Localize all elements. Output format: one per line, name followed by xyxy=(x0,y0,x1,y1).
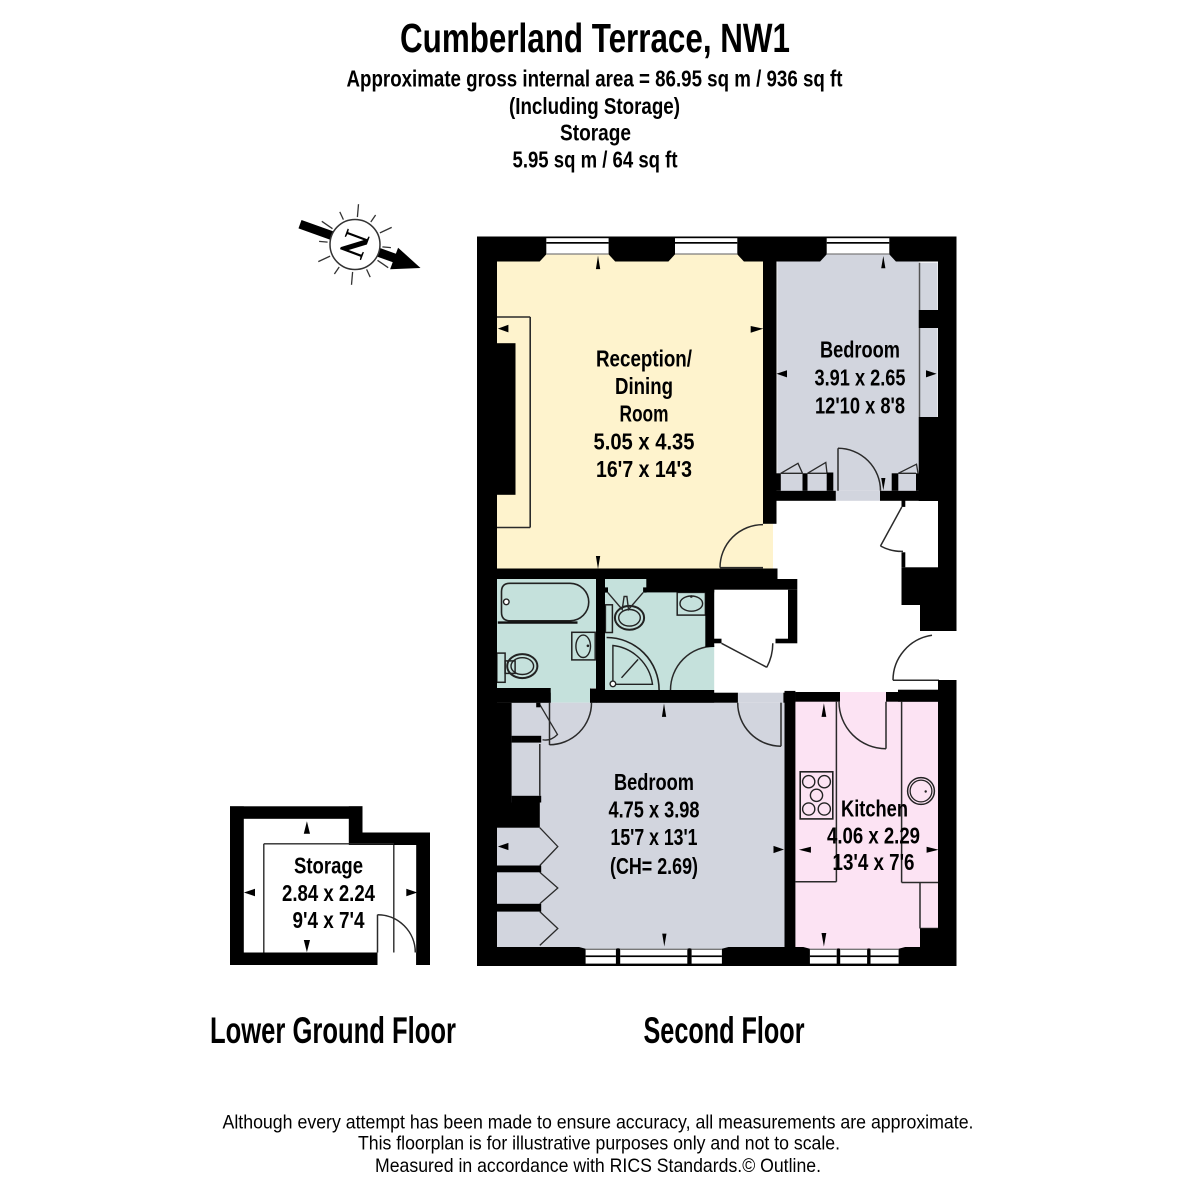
svg-text:Bedroom: Bedroom xyxy=(614,769,694,795)
svg-text:4.75 x 3.98: 4.75 x 3.98 xyxy=(609,796,700,822)
svg-text:Lower Ground Floor: Lower Ground Floor xyxy=(210,1010,456,1051)
svg-text:16'7 x 14'3: 16'7 x 14'3 xyxy=(596,456,692,482)
svg-text:Storage: Storage xyxy=(560,120,631,146)
svg-text:Storage: Storage xyxy=(294,852,363,878)
svg-text:9'4 x 7'4: 9'4 x 7'4 xyxy=(293,907,365,933)
svg-text:Second Floor: Second Floor xyxy=(644,1010,805,1051)
svg-text:Reception/: Reception/ xyxy=(596,345,692,371)
svg-text:12'10 x 8'8: 12'10 x 8'8 xyxy=(815,393,905,419)
svg-text:5.95 sq m / 64 sq ft: 5.95 sq m / 64 sq ft xyxy=(513,147,678,173)
svg-text:Although every attempt has bee: Although every attempt has been made to … xyxy=(223,1112,974,1134)
svg-text:Room: Room xyxy=(620,401,669,427)
svg-text:5.05 x 4.35: 5.05 x 4.35 xyxy=(594,428,695,454)
svg-text:15'7 x 13'1: 15'7 x 13'1 xyxy=(611,824,698,850)
svg-text:This floorplan is for illustra: This floorplan is for illustrative purpo… xyxy=(358,1133,840,1155)
svg-text:Approximate gross internal are: Approximate gross internal area = 86.95 … xyxy=(347,66,843,92)
svg-text:2.84 x 2.24: 2.84 x 2.24 xyxy=(282,880,375,906)
svg-text:3.91 x 2.65: 3.91 x 2.65 xyxy=(815,364,906,390)
svg-text:(Including Storage): (Including Storage) xyxy=(509,93,680,119)
svg-text:Dining: Dining xyxy=(615,373,673,399)
svg-text:13'4 x 7'6: 13'4 x 7'6 xyxy=(833,849,915,875)
svg-text:Bedroom: Bedroom xyxy=(820,336,900,362)
svg-text:Cumberland Terrace, NW1: Cumberland Terrace, NW1 xyxy=(400,15,790,61)
svg-text:Kitchen: Kitchen xyxy=(841,795,908,821)
svg-text:Measured in accordance with RI: Measured in accordance with RICS Standar… xyxy=(375,1155,821,1177)
svg-text:(CH= 2.69): (CH= 2.69) xyxy=(610,853,698,879)
svg-text:4.06 x 2.29: 4.06 x 2.29 xyxy=(827,822,920,848)
